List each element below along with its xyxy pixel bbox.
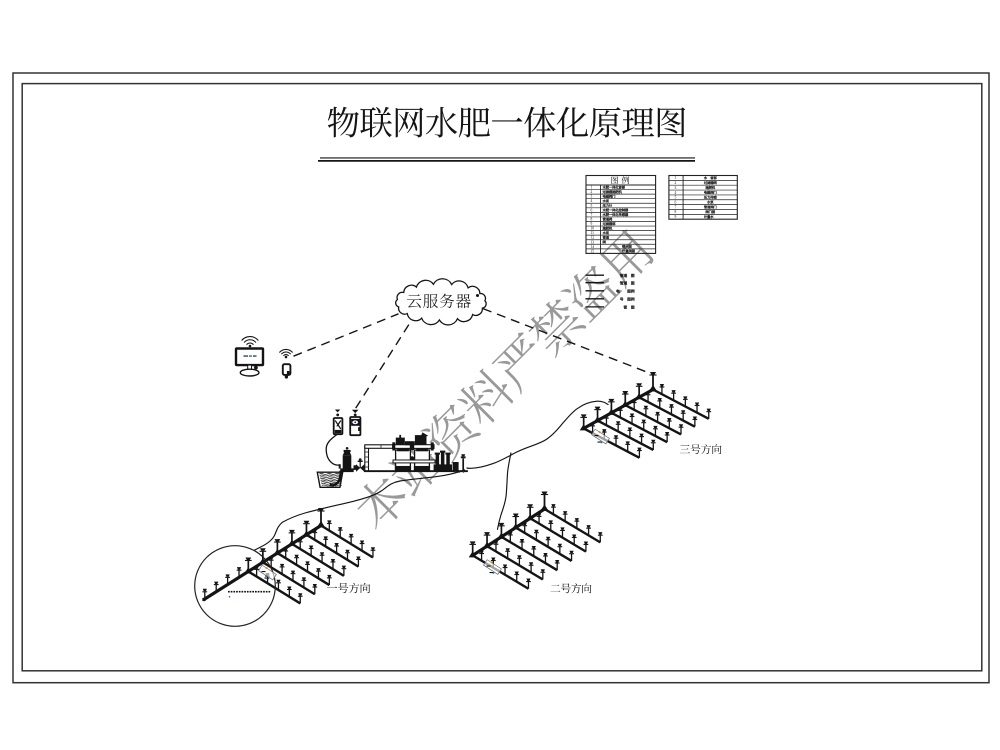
svg-text:2: 2 — [675, 181, 677, 185]
svg-text:12: 12 — [591, 236, 595, 240]
svg-text:10: 10 — [591, 227, 595, 231]
svg-text:3: 3 — [675, 186, 677, 190]
svg-text:9: 9 — [591, 222, 593, 226]
svg-text:1: 1 — [591, 186, 593, 190]
svg-text:14: 14 — [591, 245, 595, 249]
svg-text:15: 15 — [591, 249, 595, 253]
svg-text:4: 4 — [591, 199, 593, 203]
svg-text:8: 8 — [591, 218, 593, 222]
svg-text:8: 8 — [675, 210, 677, 214]
svg-text:9: 9 — [675, 215, 677, 219]
svg-text:7: 7 — [591, 213, 593, 217]
svg-text:6: 6 — [591, 208, 593, 212]
svg-text:4: 4 — [675, 191, 677, 195]
svg-text:5: 5 — [591, 204, 593, 208]
svg-text:13: 13 — [591, 240, 595, 244]
svg-text:7: 7 — [675, 205, 677, 209]
svg-text:5: 5 — [675, 196, 677, 200]
svg-text:6: 6 — [675, 201, 677, 205]
svg-text:2: 2 — [591, 190, 593, 194]
svg-text:11: 11 — [591, 231, 595, 235]
svg-text:1: 1 — [675, 176, 677, 180]
svg-text:3: 3 — [591, 195, 593, 199]
